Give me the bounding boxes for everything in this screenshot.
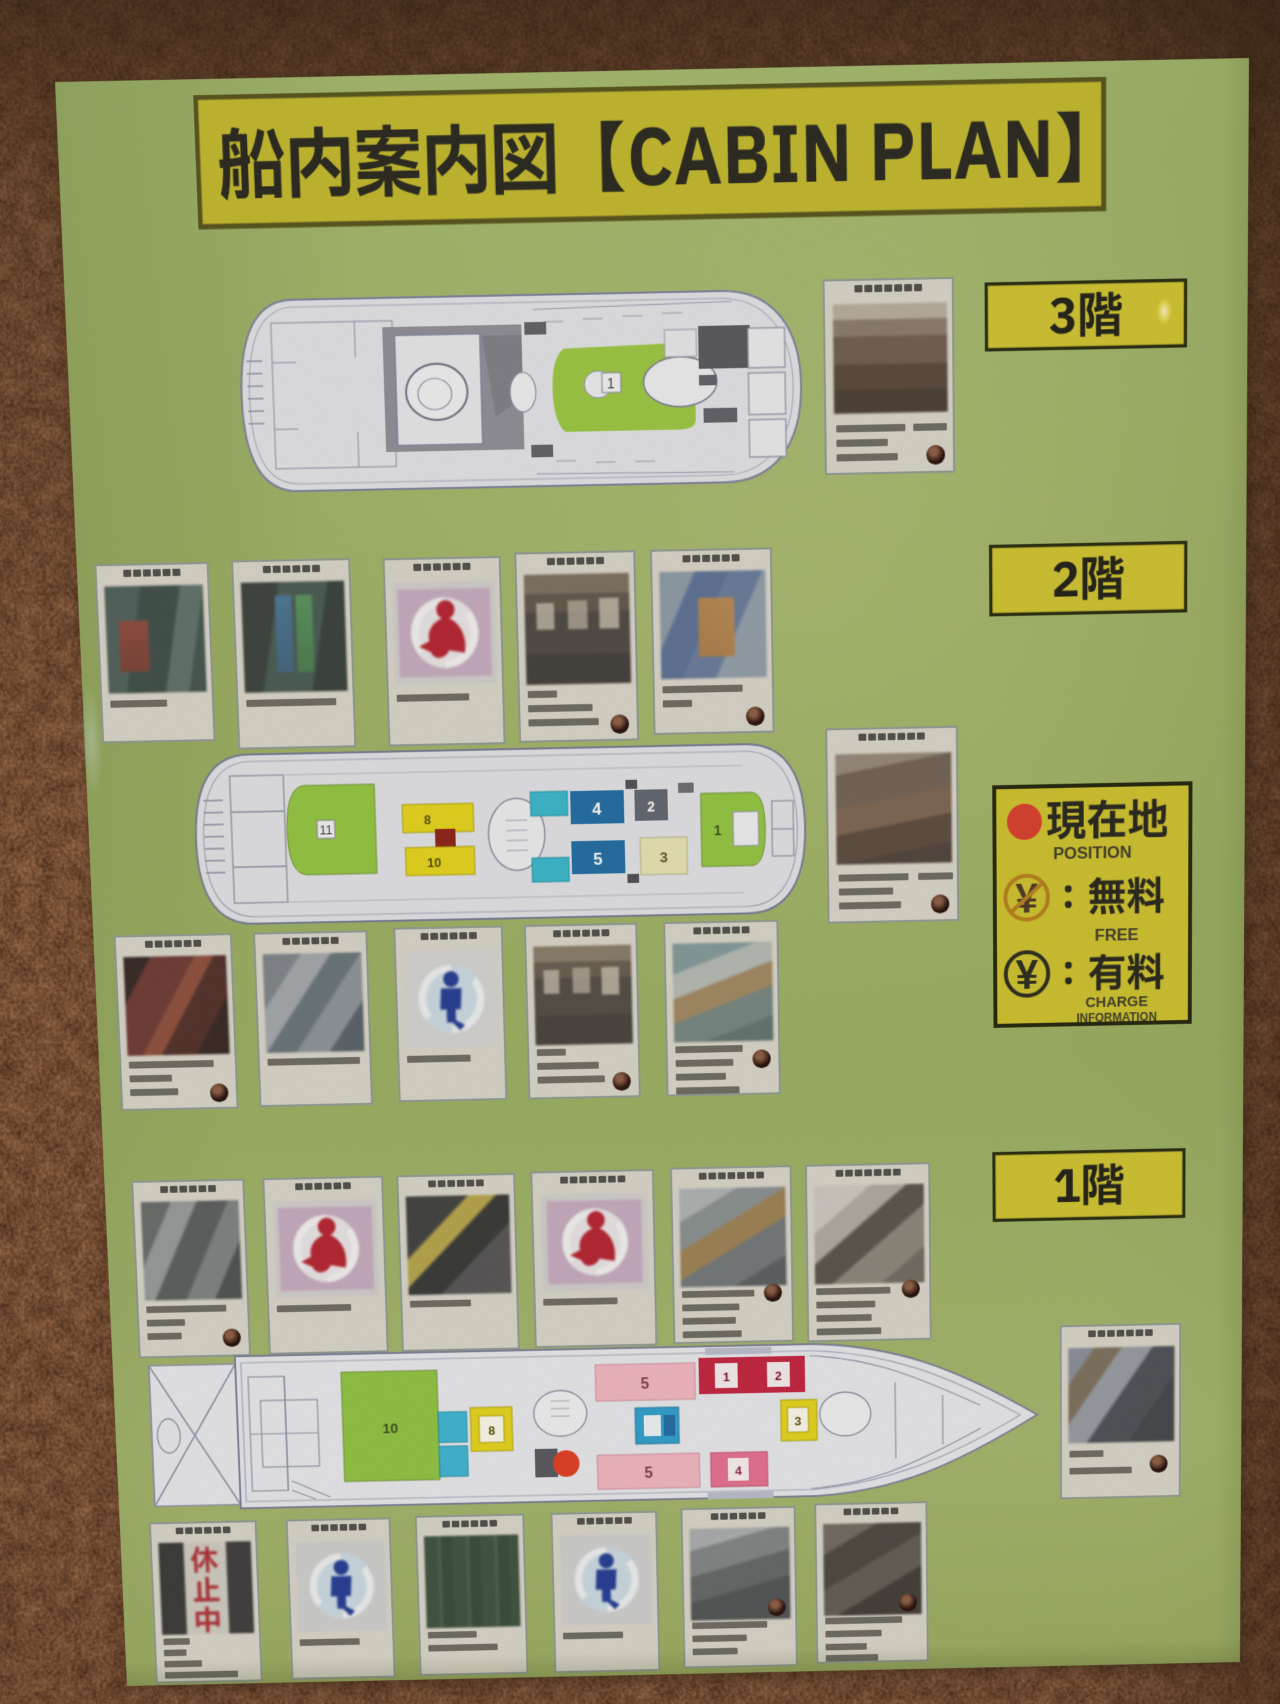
svg-text:8: 8	[488, 1424, 496, 1438]
svg-text:INFORMATION: INFORMATION	[1076, 1010, 1157, 1025]
svg-text:¥: ¥	[1016, 951, 1039, 998]
svg-text:1: 1	[607, 376, 615, 392]
svg-text:2: 2	[775, 1369, 782, 1383]
svg-text:1: 1	[714, 824, 722, 840]
svg-text:2: 2	[647, 800, 655, 816]
svg-text:5: 5	[641, 1375, 650, 1393]
svg-text:11: 11	[319, 823, 333, 838]
svg-text:CHARGE: CHARGE	[1085, 994, 1148, 1011]
svg-text:10: 10	[382, 1421, 399, 1437]
svg-text:3: 3	[660, 850, 669, 867]
svg-text:5: 5	[644, 1464, 653, 1481]
svg-text:FREE: FREE	[1095, 925, 1139, 945]
svg-text:4: 4	[592, 799, 602, 818]
svg-text:8: 8	[424, 813, 432, 828]
svg-text:3: 3	[795, 1414, 802, 1428]
svg-text:10: 10	[427, 855, 441, 870]
svg-text:1: 1	[723, 1370, 731, 1384]
svg-text:POSITION: POSITION	[1053, 842, 1132, 863]
svg-text:4: 4	[735, 1464, 742, 1478]
svg-text:5: 5	[593, 849, 603, 868]
